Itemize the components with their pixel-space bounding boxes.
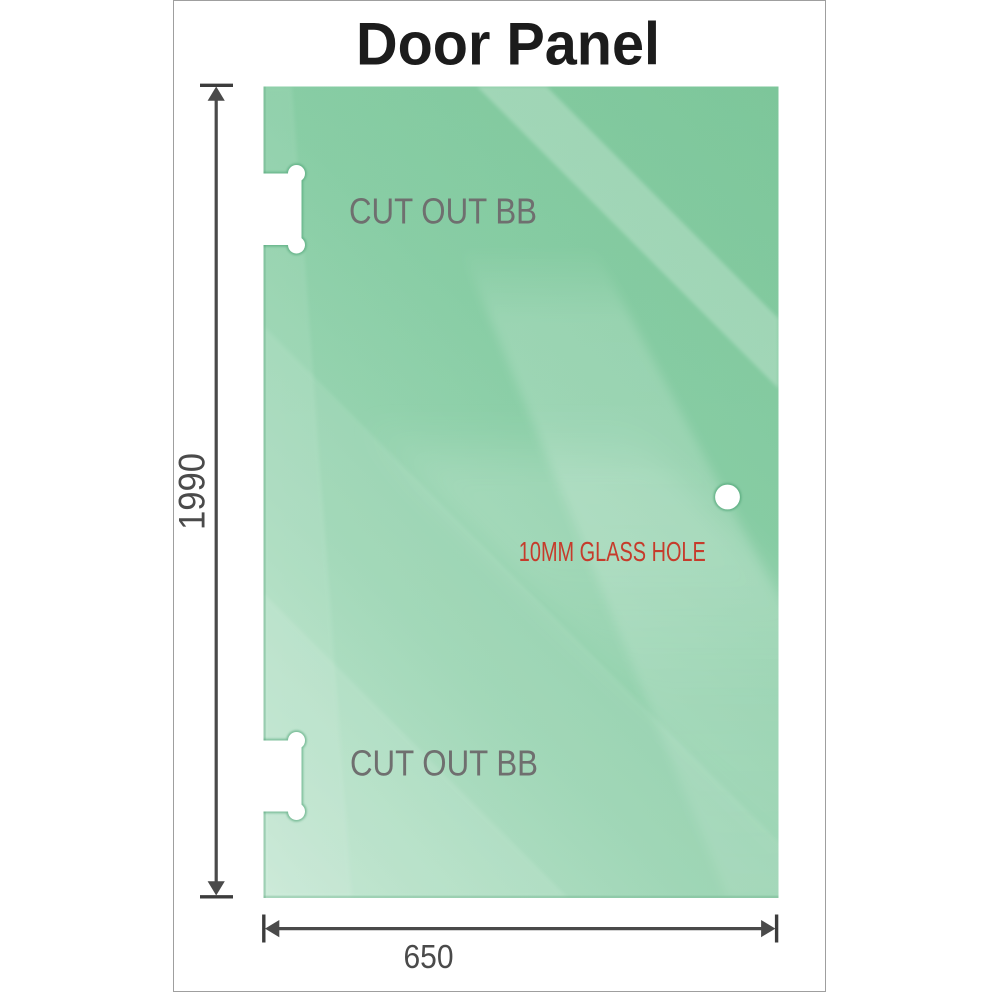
svg-text:650: 650 xyxy=(404,938,454,975)
svg-text:1990: 1990 xyxy=(171,453,212,530)
svg-text:CUT OUT BB: CUT OUT BB xyxy=(350,743,538,784)
svg-text:Door Panel: Door Panel xyxy=(356,11,660,78)
svg-text:CUT OUT BB: CUT OUT BB xyxy=(349,191,537,232)
svg-text:10MM GLASS HOLE: 10MM GLASS HOLE xyxy=(519,536,706,567)
